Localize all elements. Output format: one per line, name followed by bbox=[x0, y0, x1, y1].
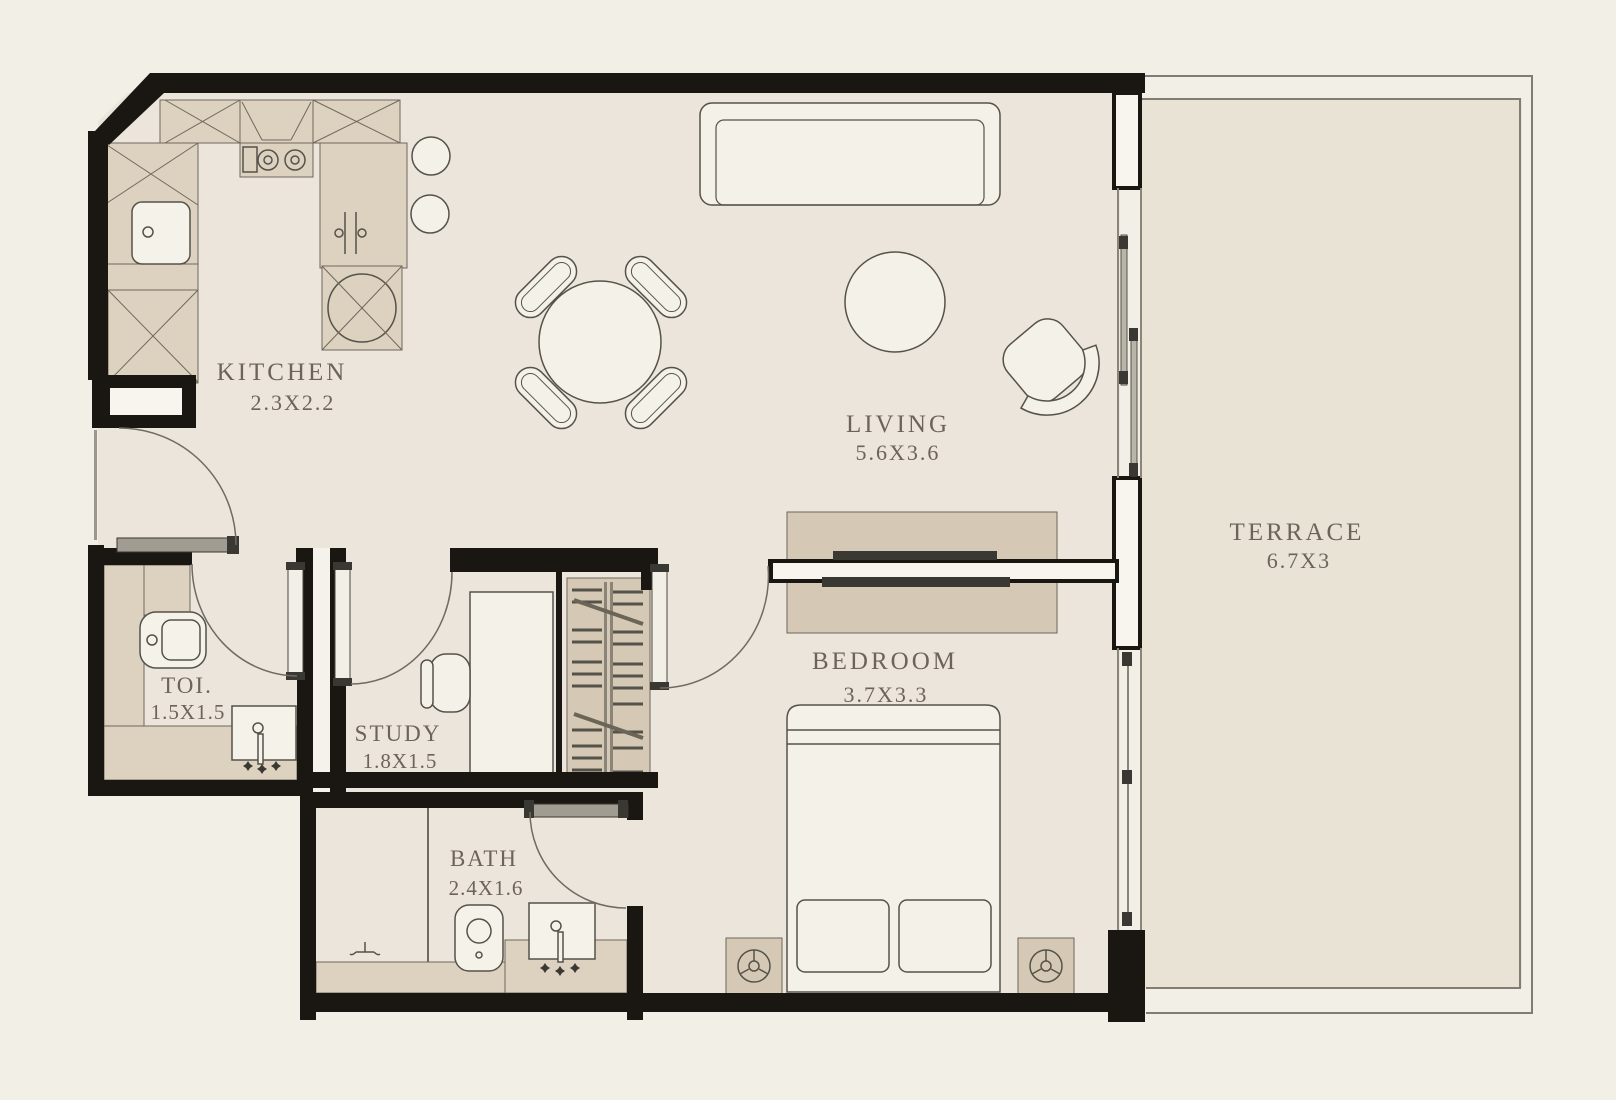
entry-niche-slot bbox=[110, 388, 182, 415]
bedroom-label: BEDROOM bbox=[812, 648, 958, 675]
desk bbox=[470, 592, 553, 779]
bedroom-window bbox=[1117, 648, 1142, 930]
kitchen-dims: 2.3X2.2 bbox=[251, 390, 336, 415]
bar-stool bbox=[411, 195, 449, 233]
bath-dims: 2.4X1.6 bbox=[449, 876, 524, 900]
wardrobe bbox=[567, 578, 650, 782]
pillow bbox=[797, 900, 889, 972]
study-label: STUDY bbox=[355, 721, 442, 746]
bar-stool bbox=[412, 137, 450, 175]
study-dims: 1.8X1.5 bbox=[363, 749, 438, 773]
toilet-label: TOI. bbox=[161, 673, 213, 698]
kitchen-label: KITCHEN bbox=[217, 359, 348, 386]
nightstand bbox=[726, 938, 782, 994]
tv-living-side bbox=[833, 551, 997, 560]
pillow bbox=[899, 900, 991, 972]
terrace-label: TERRACE bbox=[1230, 519, 1365, 546]
living-sliding-door bbox=[1117, 188, 1142, 478]
tv-bedroom-side bbox=[822, 577, 1010, 587]
kitchen-sink bbox=[132, 202, 190, 264]
living-label: LIVING bbox=[846, 411, 950, 438]
desk-chair bbox=[421, 654, 470, 712]
nightstand bbox=[1018, 938, 1074, 994]
bath-label: BATH bbox=[450, 846, 518, 871]
washing-machine bbox=[322, 266, 402, 350]
coffee-table bbox=[845, 252, 945, 352]
floor-plan-page: KITCHEN 2.3X2.2 LIVING 5.6X3.6 TERRACE 6… bbox=[0, 0, 1616, 1100]
floor-plan-canvas: KITCHEN 2.3X2.2 LIVING 5.6X3.6 TERRACE 6… bbox=[0, 0, 1616, 1100]
dining-table bbox=[539, 281, 661, 403]
terrace-dims: 6.7X3 bbox=[1267, 548, 1331, 573]
bed bbox=[787, 705, 1000, 992]
bottom-left-cutout bbox=[88, 796, 300, 1012]
bath-wc bbox=[455, 905, 503, 971]
bedroom-dims: 3.7X3.3 bbox=[844, 682, 929, 707]
toilet-dims: 1.5X1.5 bbox=[151, 700, 226, 724]
toilet-wc bbox=[140, 612, 206, 668]
right-wall-segment bbox=[1114, 93, 1140, 188]
stove bbox=[240, 100, 313, 177]
sofa bbox=[700, 103, 1000, 205]
living-dims: 5.6X3.6 bbox=[856, 440, 941, 465]
